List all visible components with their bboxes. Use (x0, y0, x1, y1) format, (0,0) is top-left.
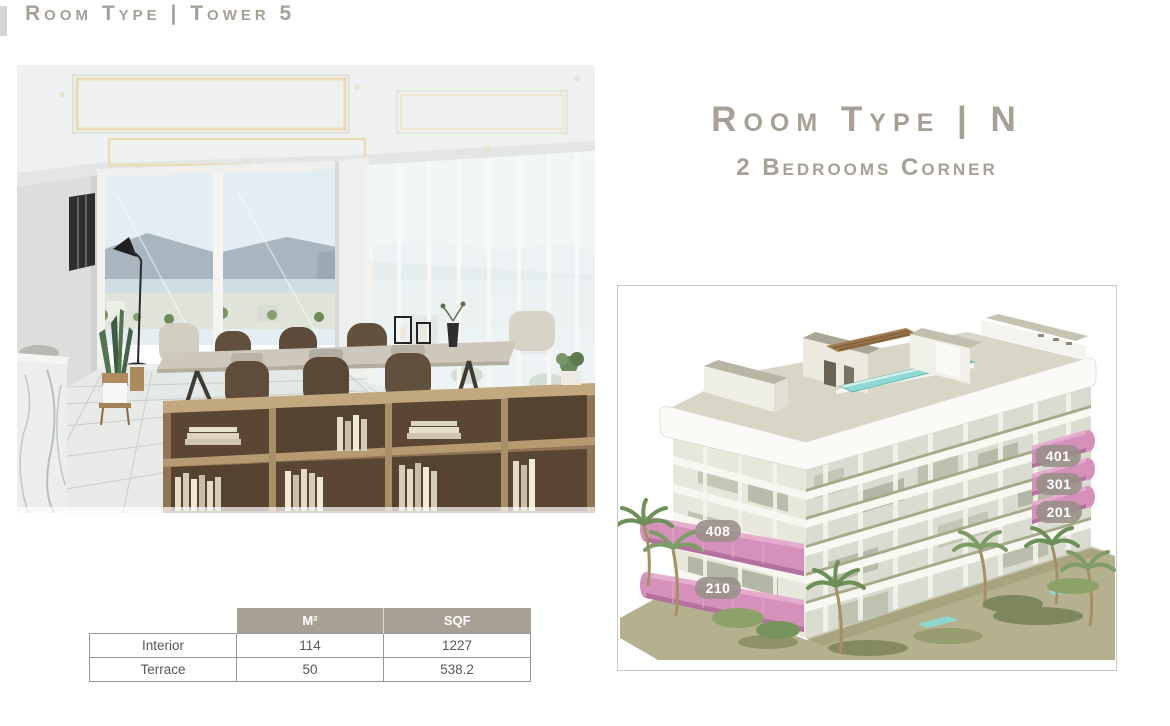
kitchen-island (17, 345, 69, 518)
terrace-m2: 50 (237, 658, 384, 682)
interior-m2: 114 (237, 634, 384, 658)
page-title: Room Type | Tower 5 (25, 2, 295, 26)
room-title: Room Type | N (617, 100, 1117, 140)
area-table-col-sqf: SQF (384, 608, 531, 634)
unit-badge-201: 201 (1036, 501, 1082, 523)
brochure-slide: Room Type | Tower 5 (0, 0, 1170, 726)
row-label: Interior (90, 634, 237, 658)
building-image: 401 301 201 408 210 (617, 285, 1117, 671)
photo-bottom-fade-edge (17, 513, 595, 518)
unit-badge-301: 301 (1036, 473, 1082, 495)
row-label: Terrace (90, 658, 237, 682)
room-title-block: Room Type | N 2 Bedrooms Corner (617, 100, 1117, 182)
wall-art-frame (69, 193, 95, 271)
interior-photo (17, 65, 595, 518)
header-accent-bar (0, 6, 7, 36)
terrace-sqf: 538.2 (384, 658, 531, 682)
area-table: M² SQF Interior 114 1227 Terrace 50 538.… (89, 608, 531, 682)
area-table-col-m2: M² (237, 608, 384, 634)
unit-badge-401: 401 (1035, 445, 1081, 467)
unit-badge-210: 210 (695, 577, 741, 599)
area-table-corner-cell (90, 608, 237, 634)
table-row-interior: Interior 114 1227 (90, 634, 531, 658)
room-subtitle: 2 Bedrooms Corner (617, 154, 1117, 182)
area-table-header-row: M² SQF (90, 608, 531, 634)
table-row-terrace: Terrace 50 538.2 (90, 658, 531, 682)
interior-sqf: 1227 (384, 634, 531, 658)
unit-badge-408: 408 (695, 520, 741, 542)
